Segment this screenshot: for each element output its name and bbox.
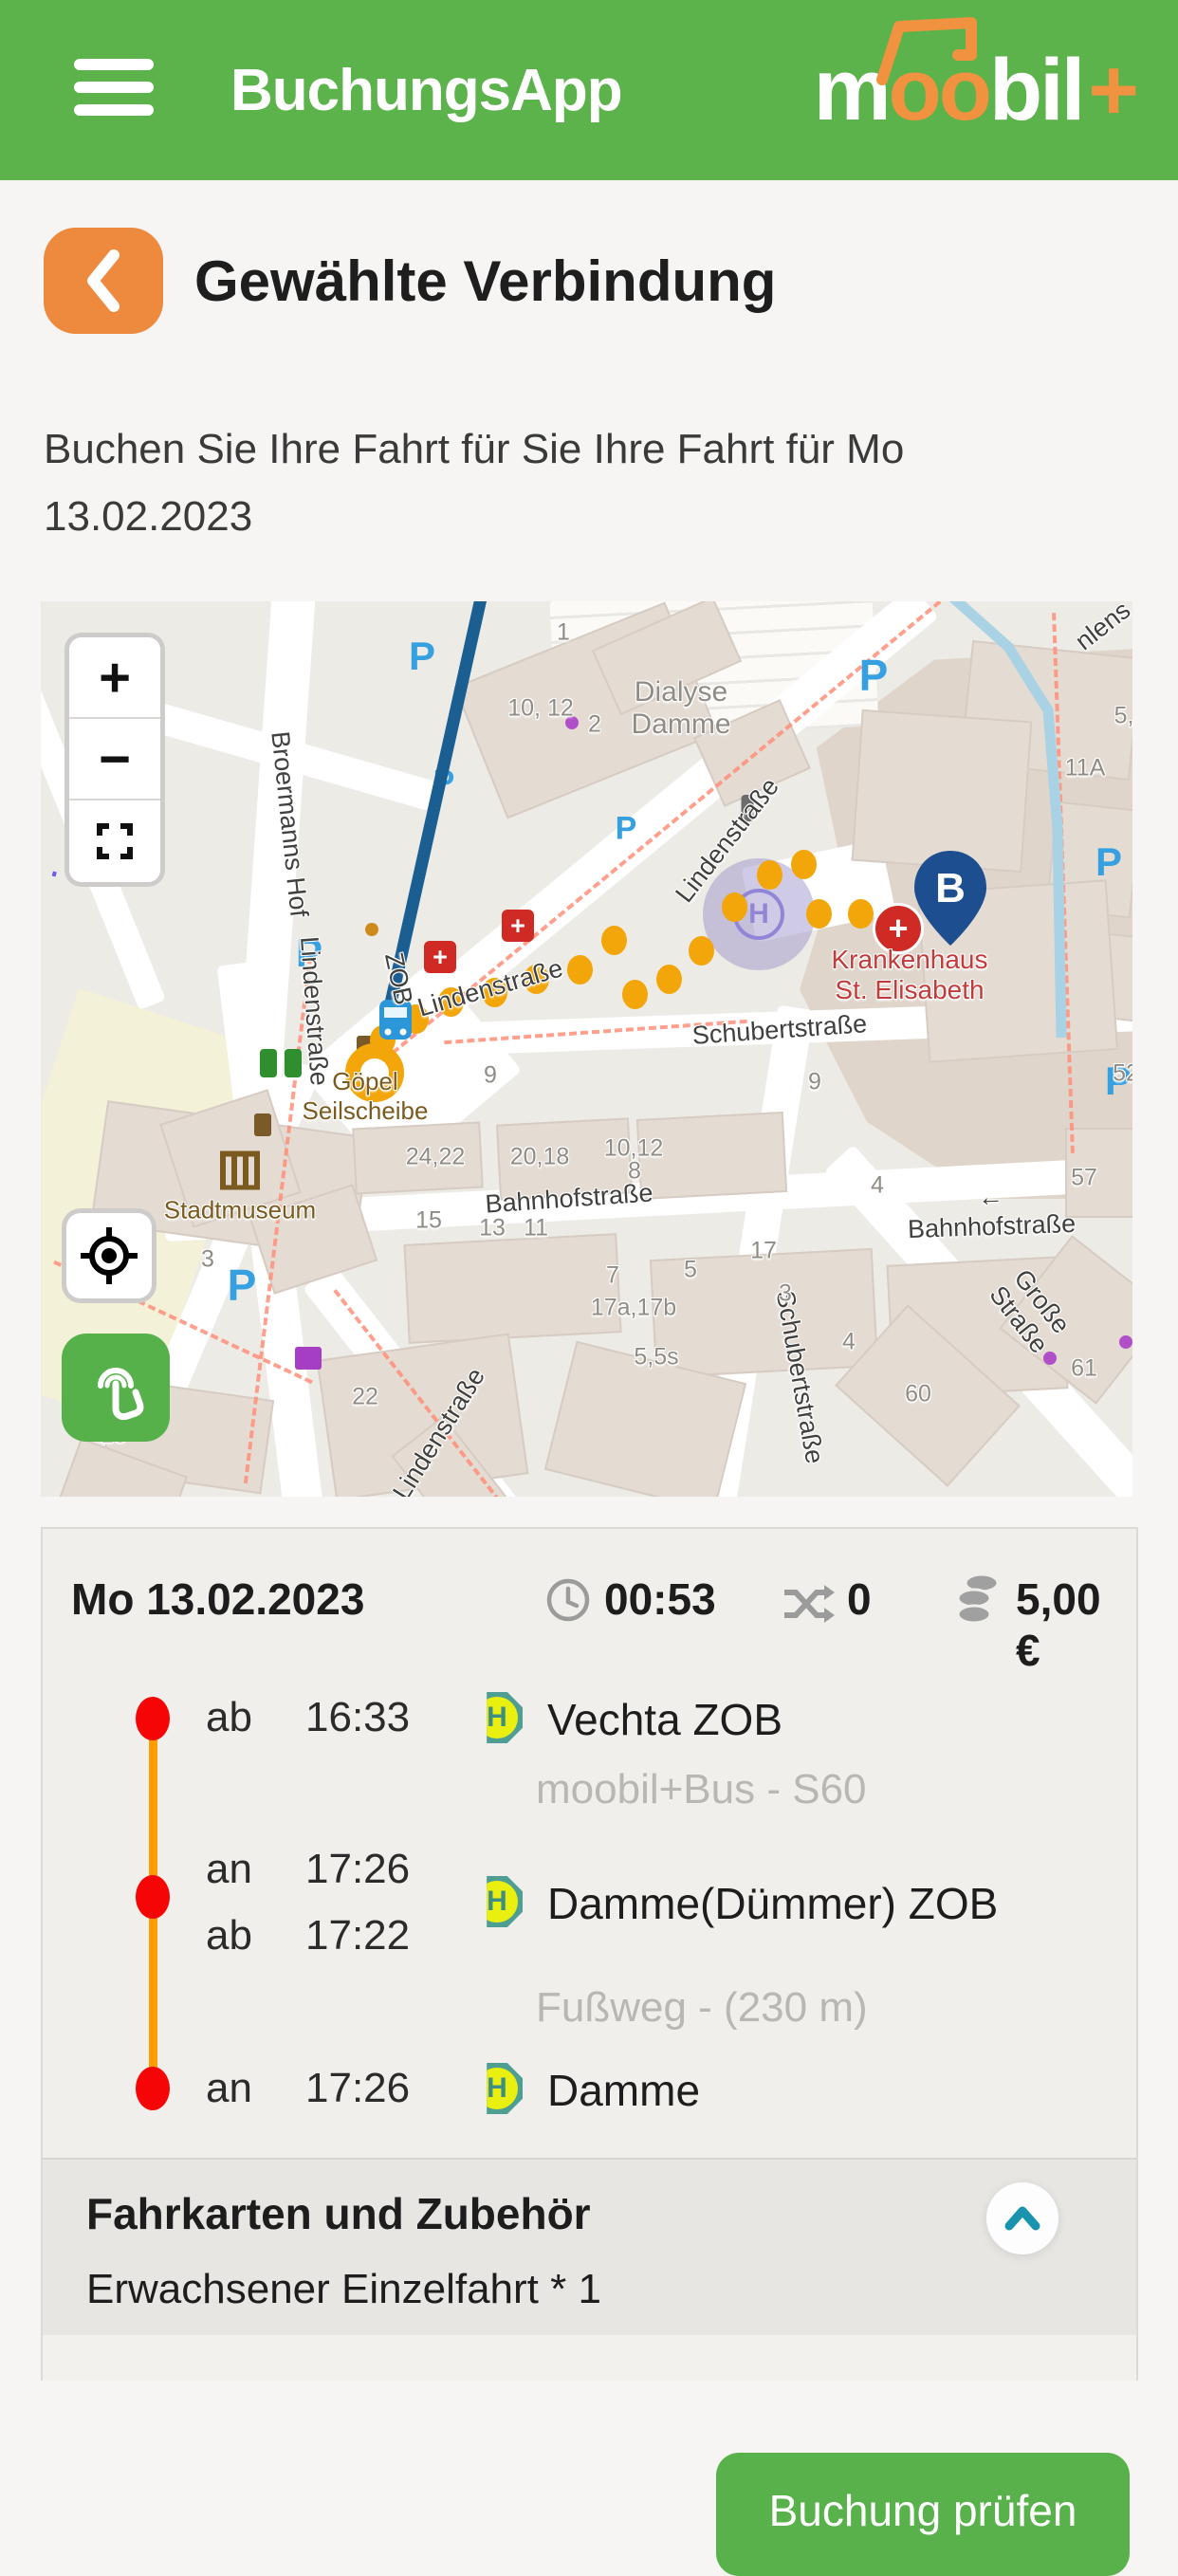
- bin-icon: [254, 1113, 271, 1136]
- odot-icon: [365, 923, 378, 936]
- fullscreen-icon: [97, 823, 133, 859]
- stop-dep-label: ab: [206, 1694, 252, 1741]
- card-footer-strip: [43, 2335, 1136, 2381]
- bus-stop-sign-icon: H: [471, 1876, 523, 1927]
- page-title: Gewählte Verbindung: [194, 248, 776, 314]
- parking-icon: P: [859, 650, 889, 701]
- transfers-icon: [782, 1582, 836, 1626]
- moobil-logo: moobil+: [814, 0, 1136, 180]
- map-label: 3: [779, 1280, 792, 1308]
- cart-icon: [295, 1347, 322, 1370]
- back-button[interactable]: [44, 228, 163, 334]
- parking-icon: P: [409, 634, 435, 679]
- locate-button[interactable]: [62, 1208, 156, 1303]
- map-label: 5: [684, 1257, 697, 1284]
- connection-card: Mo 13.02.2023 00:53 0 5,00 € ab 16:33 H …: [41, 1527, 1138, 2381]
- map-label: 13: [479, 1215, 506, 1242]
- map-label: 2: [588, 711, 601, 739]
- stop-name: Vechta ZOB: [547, 1694, 782, 1745]
- clock-icon: [545, 1577, 591, 1623]
- timeline-stop-dot: [136, 1875, 170, 1919]
- stop-sign-h: H: [476, 1697, 518, 1739]
- logo-plus: +: [1088, 41, 1136, 140]
- stop-arr-label: an: [206, 2065, 252, 2112]
- intro-text: Buchen Sie Ihre Fahrt für Sie Ihre Fahrt…: [44, 415, 1134, 551]
- tickets-section: Fahrkarten und Zubehör Erwachsener Einze…: [43, 2158, 1136, 2337]
- map-label: 11: [524, 1215, 548, 1242]
- stop-dep-time: 16:33: [305, 1694, 410, 1741]
- map-label: 60: [905, 1381, 931, 1408]
- map-label: 8: [628, 1158, 641, 1186]
- map-label: 17: [750, 1238, 777, 1265]
- stop-arr-label: an: [206, 1846, 252, 1893]
- map-building: [403, 1233, 621, 1344]
- menu-icon[interactable]: [74, 59, 154, 116]
- map-label: Stadtmuseum: [164, 1196, 316, 1225]
- map-label: 7: [606, 1262, 619, 1290]
- tickets-title: Fahrkarten und Zubehör: [86, 2188, 591, 2239]
- trip-duration: 00:53: [604, 1573, 716, 1625]
- ticket-item: Erwachsener Einzelfahrt * 1: [86, 2266, 601, 2313]
- map-walk-dot: [656, 965, 682, 994]
- leg-description: Fußweg - (230 m): [536, 1984, 868, 2032]
- chevron-left-icon: [82, 248, 125, 314]
- pin-b-label: B: [935, 865, 966, 911]
- green-icon: [260, 1049, 277, 1077]
- map-label: 17a,17b: [591, 1295, 676, 1322]
- trip-transfers: 0: [847, 1573, 872, 1625]
- map-label: 4: [871, 1172, 884, 1200]
- map-label: Göpel Seilscheibe: [303, 1067, 429, 1126]
- map-zoom-controls: + −: [64, 633, 165, 887]
- map-label: Dialyse Damme: [631, 676, 730, 741]
- stop-sign-h: H: [476, 1881, 518, 1923]
- map-label: 11A: [1065, 755, 1106, 782]
- map-label: 3: [201, 1246, 214, 1274]
- trip-summary: Mo 13.02.2023 00:53 0 5,00 €: [43, 1529, 1136, 1671]
- destination-pin-b: B: [911, 849, 990, 948]
- map-label: 9: [484, 1062, 497, 1090]
- stop-name: Damme(Dümmer) ZOB: [547, 1878, 998, 1929]
- green-icon: [285, 1049, 302, 1077]
- map-label: 1: [557, 619, 570, 647]
- zoom-out-button[interactable]: −: [69, 719, 160, 800]
- map-label: 20,18: [510, 1144, 570, 1171]
- map-label: 5,: [1114, 703, 1132, 730]
- map-walk-dot: [622, 980, 648, 1009]
- zoom-in-button[interactable]: +: [69, 637, 160, 719]
- map-label: ← Bahnhofstraße: [906, 1180, 1076, 1244]
- trip-price: 5,00 €: [1016, 1573, 1136, 1676]
- touch-gesture-icon: [82, 1353, 150, 1422]
- trip-date: Mo 13.02.2023: [71, 1573, 364, 1625]
- med-icon: +: [424, 941, 456, 973]
- map-label: 24,22: [406, 1144, 466, 1171]
- map-label: 5,5s: [634, 1344, 678, 1371]
- map-label: 22: [352, 1384, 378, 1411]
- med-icon: +: [502, 910, 534, 942]
- stop-arr-time: 17:26: [305, 1846, 410, 1893]
- leg-description: moobil+Bus - S60: [536, 1766, 867, 1813]
- parking-icon: P: [616, 811, 637, 848]
- map-walk-dot: [791, 850, 817, 879]
- touch-mode-button[interactable]: [62, 1334, 170, 1442]
- stop-sign-h: H: [476, 2068, 518, 2109]
- map-label: 9: [808, 1069, 821, 1096]
- timeline-stop-dot: [136, 1697, 170, 1740]
- stop-dep-time: 17:22: [305, 1912, 410, 1960]
- parking-icon: P: [1095, 839, 1122, 885]
- app-header: BuchungsApp moobil+: [0, 0, 1178, 180]
- map-walk-dot: [722, 892, 747, 922]
- map-label: 57: [1071, 1165, 1097, 1192]
- map-label: 15: [415, 1207, 442, 1235]
- timeline-stop-dot: [136, 2067, 170, 2110]
- collapse-button[interactable]: [986, 2182, 1058, 2254]
- tractor-icon: [874, 13, 988, 85]
- logo-bil: bil: [989, 41, 1082, 140]
- map-walk-dot: [848, 899, 874, 929]
- map-label: 52: [1113, 1060, 1132, 1088]
- route-map[interactable]: PPPPPPPP+++Broermanns HofZOBLindenstraße…: [41, 601, 1132, 1497]
- bus-stop-sign-icon: H: [471, 1692, 523, 1743]
- itinerary: ab 16:33 H Vechta ZOB moobil+Bus - S60 a…: [43, 1671, 1136, 2158]
- map-label: 61: [1071, 1355, 1097, 1383]
- map-label: nlens: [1070, 601, 1132, 656]
- stop-name: Damme: [547, 2065, 700, 2116]
- price-icon: [951, 1573, 1003, 1626]
- app-title: BuchungsApp: [230, 0, 622, 180]
- chevron-up-icon: [1000, 2201, 1045, 2236]
- bus-stop-sign-icon: H: [471, 2063, 523, 2114]
- stop-dep-label: ab: [206, 1912, 252, 1960]
- crosshair-icon: [78, 1224, 140, 1287]
- map-walk-dot: [689, 936, 714, 966]
- parking-icon: P: [433, 764, 455, 801]
- fullscreen-button[interactable]: [69, 800, 160, 882]
- map-walk-dot: [806, 899, 832, 929]
- map-label: Krankenhaus St. Elisabeth: [831, 945, 987, 1005]
- check-booking-button[interactable]: Buchung prüfen: [716, 2453, 1130, 2576]
- parking-icon: P: [228, 1260, 257, 1311]
- museum-icon: [220, 1151, 260, 1190]
- map-label: 10, 12: [507, 695, 574, 723]
- map-walk-dot: [567, 955, 593, 984]
- map-walk-dot: [757, 860, 782, 890]
- stop-arr-time: 17:26: [305, 2065, 410, 2112]
- map-label: 4: [842, 1329, 856, 1356]
- pdot-icon: [1119, 1335, 1132, 1349]
- map-walk-dot: [601, 926, 627, 955]
